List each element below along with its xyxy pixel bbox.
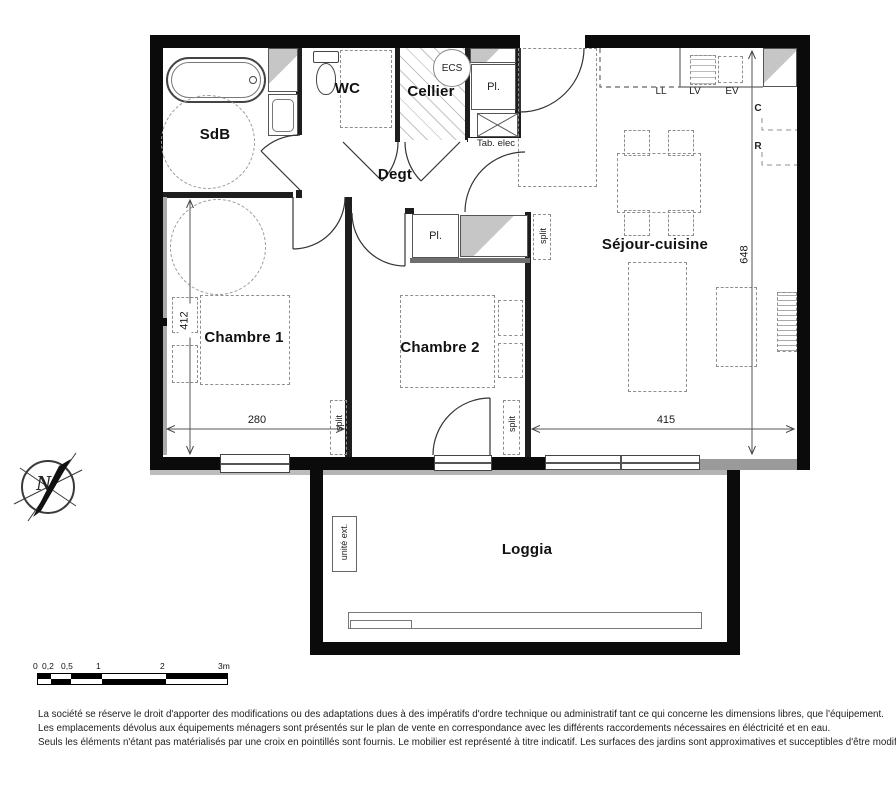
wall-bottom-4 xyxy=(700,459,797,470)
window-glass-line xyxy=(546,462,699,464)
room-label-loggia: Loggia xyxy=(487,541,567,558)
label-lv: LV xyxy=(686,86,704,97)
closet-entry: Pl. xyxy=(471,64,516,110)
wall-sdb-stub xyxy=(296,190,302,198)
room-label-chambre1: Chambre 1 xyxy=(199,329,289,346)
label-ll: LL xyxy=(652,86,670,97)
scale-segment xyxy=(166,679,227,684)
label-ev: EV xyxy=(722,86,742,97)
bathtub-faucet xyxy=(249,76,257,84)
scale-segment xyxy=(38,679,51,684)
turning-circle-chambre1 xyxy=(170,199,266,295)
split-unit-box xyxy=(460,215,528,257)
wall-bottom-1 xyxy=(150,457,222,470)
washbasin-inner xyxy=(272,99,294,132)
scale-segment xyxy=(51,679,71,684)
scale-bar xyxy=(37,673,228,685)
closet-rail xyxy=(410,258,530,263)
chair xyxy=(668,130,694,156)
label-split: split xyxy=(538,223,548,249)
room-label-cellier: Cellier xyxy=(396,83,466,100)
nightstand xyxy=(498,300,523,336)
dim-280: 280 xyxy=(240,414,274,427)
duct-corner xyxy=(763,48,797,87)
label-unite-ext: unité ext. xyxy=(339,520,349,564)
wall-right xyxy=(797,35,810,470)
label-c: C xyxy=(752,103,764,114)
loggia-wall-right xyxy=(727,470,740,655)
room-label-sejour: Séjour-cuisine xyxy=(595,236,715,253)
wall-sdb-bottom xyxy=(163,192,293,198)
wall-left xyxy=(150,35,163,470)
duct-sdb xyxy=(268,48,298,92)
radiator xyxy=(777,292,797,352)
wall-bottom-3 xyxy=(492,457,545,470)
disclaimer-line-3: Seuls les éléments n'étant pas matériali… xyxy=(38,737,896,748)
window-chambre1 xyxy=(220,454,290,473)
compass-north-letter: N xyxy=(36,471,51,496)
sofa xyxy=(716,287,757,367)
ecs-tank: ECS xyxy=(433,49,471,87)
dishwasher xyxy=(690,55,716,85)
closet-chambre2-label: Pl. xyxy=(429,230,442,242)
loggia-rail-inner xyxy=(350,620,412,629)
window-divider xyxy=(620,456,622,469)
wall-top-right xyxy=(585,35,810,48)
chair xyxy=(624,210,650,236)
chair xyxy=(668,210,694,236)
washbasin xyxy=(268,94,298,136)
scale-label-2: 2 xyxy=(160,661,165,671)
window-glass-line xyxy=(221,463,289,465)
scale-label-05: 0,5 xyxy=(61,661,73,671)
sink xyxy=(718,56,743,83)
label-split: split xyxy=(334,410,344,436)
window-glass-line xyxy=(435,462,491,464)
dim-415: 415 xyxy=(648,414,684,427)
chair xyxy=(624,130,650,156)
nightstand xyxy=(498,343,523,378)
label-r: R xyxy=(752,141,764,152)
room-label-chambre2: Chambre 2 xyxy=(395,339,485,356)
disclaimer-line-1: La société se réserve le droit d'apporte… xyxy=(38,709,884,720)
closet-entry-label: Pl. xyxy=(487,81,500,93)
cr-connectors xyxy=(762,118,797,165)
nightstand xyxy=(172,345,198,383)
entry-zone xyxy=(518,48,597,187)
scale-bar-row-bottom xyxy=(38,679,227,684)
bathtub-inner xyxy=(171,62,261,98)
room-label-sdb: SdB xyxy=(185,126,245,143)
room-label-degt: Degt xyxy=(365,166,425,183)
scale-label-3m: 3m xyxy=(218,661,230,671)
dim-648: 648 xyxy=(739,238,752,272)
scale-segment xyxy=(102,679,166,684)
wall-top-left xyxy=(150,35,520,48)
window-chambre2 xyxy=(434,455,492,471)
loggia-top-strip xyxy=(323,470,727,475)
scale-segment xyxy=(71,679,102,684)
floorplan-page: ECS Pl. Tab. elec Pl. xyxy=(0,0,896,800)
tab-elec-box xyxy=(477,113,518,137)
scale-label-1: 1 xyxy=(96,661,101,671)
label-split: split xyxy=(507,411,517,437)
wall-left-lining xyxy=(163,197,167,455)
sideboard xyxy=(628,262,687,392)
scale-label-0: 0 xyxy=(33,661,38,671)
closet-chambre2: Pl. xyxy=(412,214,459,258)
ecs-label: ECS xyxy=(442,63,463,74)
toilet-tank xyxy=(313,51,339,63)
dim-412: 412 xyxy=(179,304,192,338)
duct-entry xyxy=(470,48,516,63)
dining-table xyxy=(617,153,701,213)
tab-elec-label: Tab. elec xyxy=(468,138,524,149)
disclaimer-line-2: Les emplacements dévolus aux équipements… xyxy=(38,723,830,734)
wall-bottom-2 xyxy=(290,457,435,470)
scale-label-02: 0,2 xyxy=(42,661,54,671)
window-sejour xyxy=(545,455,700,470)
loggia-wall-bottom xyxy=(310,642,740,655)
room-label-wc: WC xyxy=(325,80,370,97)
loggia-wall-left xyxy=(310,470,323,655)
wall-left-nib xyxy=(150,318,167,326)
